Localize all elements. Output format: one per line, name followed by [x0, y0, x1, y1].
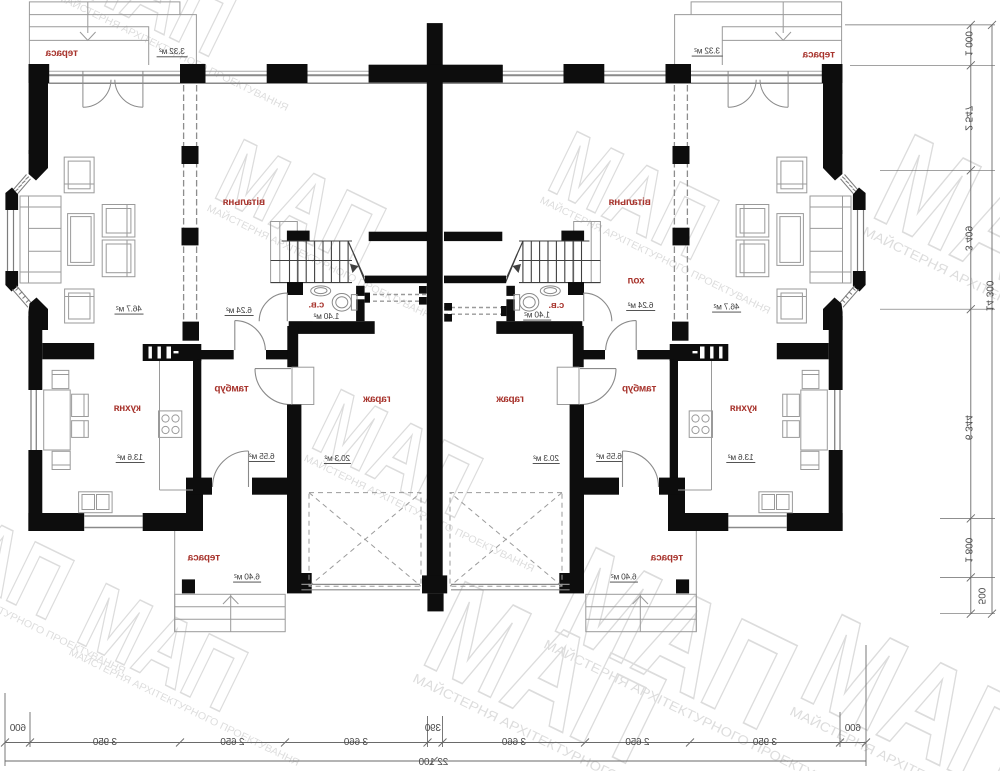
svg-text:тераса: тераса — [187, 553, 220, 564]
svg-text:3 950: 3 950 — [92, 737, 117, 748]
svg-text:500: 500 — [976, 587, 987, 604]
svg-text:2 650: 2 650 — [220, 737, 245, 748]
svg-text:6.55 м²: 6.55 м² — [596, 451, 622, 461]
svg-text:2 547: 2 547 — [963, 105, 974, 130]
svg-text:20.3 м²: 20.3 м² — [533, 453, 559, 463]
svg-text:6.55 м²: 6.55 м² — [249, 451, 275, 461]
svg-text:3 660: 3 660 — [501, 737, 526, 748]
svg-text:1.40 м²: 1.40 м² — [524, 310, 550, 320]
svg-text:22 100: 22 100 — [418, 757, 448, 768]
svg-text:тамбур: тамбур — [215, 383, 249, 395]
svg-text:20.3 м²: 20.3 м² — [324, 453, 350, 463]
svg-text:13.6 м²: 13.6 м² — [728, 452, 754, 462]
svg-text:600: 600 — [9, 723, 26, 734]
svg-text:тераса: тераса — [45, 48, 78, 59]
svg-text:3 660: 3 660 — [343, 737, 368, 748]
svg-text:вітальня: вітальня — [223, 197, 266, 208]
svg-text:6 344: 6 344 — [963, 415, 974, 440]
svg-text:1.40 м²: 1.40 м² — [313, 311, 339, 321]
svg-text:6.24 м²: 6.24 м² — [226, 305, 252, 315]
svg-text:3.32 м²: 3.32 м² — [159, 46, 185, 56]
svg-text:390: 390 — [424, 723, 441, 734]
svg-text:1 800: 1 800 — [963, 537, 974, 562]
svg-text:14 300: 14 300 — [984, 280, 995, 311]
svg-text:6.40 м²: 6.40 м² — [234, 572, 260, 582]
svg-text:вітальня: вітальня — [608, 197, 651, 208]
svg-text:кухня: кухня — [730, 403, 757, 414]
svg-text:600: 600 — [844, 723, 861, 734]
svg-text:с.в.: с.в. — [549, 300, 565, 311]
svg-text:46.7 м²: 46.7 м² — [116, 304, 142, 314]
svg-text:6.40 м²: 6.40 м² — [611, 572, 637, 582]
svg-text:хол: хол — [628, 276, 645, 287]
svg-text:с.в.: с.в. — [309, 300, 325, 311]
svg-text:46.7 м²: 46.7 м² — [713, 302, 739, 312]
svg-text:кухня: кухня — [113, 403, 140, 414]
svg-text:тераса: тераса — [650, 553, 683, 564]
svg-text:13.6 м²: 13.6 м² — [117, 452, 143, 462]
svg-text:гараж: гараж — [495, 394, 524, 405]
svg-text:3.32 м²: 3.32 м² — [694, 46, 720, 56]
svg-text:3 950: 3 950 — [752, 737, 777, 748]
svg-text:2 650: 2 650 — [625, 737, 650, 748]
svg-text:1 000: 1 000 — [963, 31, 974, 56]
svg-text:6.24 м²: 6.24 м² — [628, 300, 654, 310]
svg-text:тамбур: тамбур — [622, 383, 656, 395]
svg-text:3 409: 3 409 — [963, 226, 974, 251]
svg-text:тераса: тераса — [802, 50, 835, 61]
svg-text:гараж: гараж — [362, 394, 391, 405]
